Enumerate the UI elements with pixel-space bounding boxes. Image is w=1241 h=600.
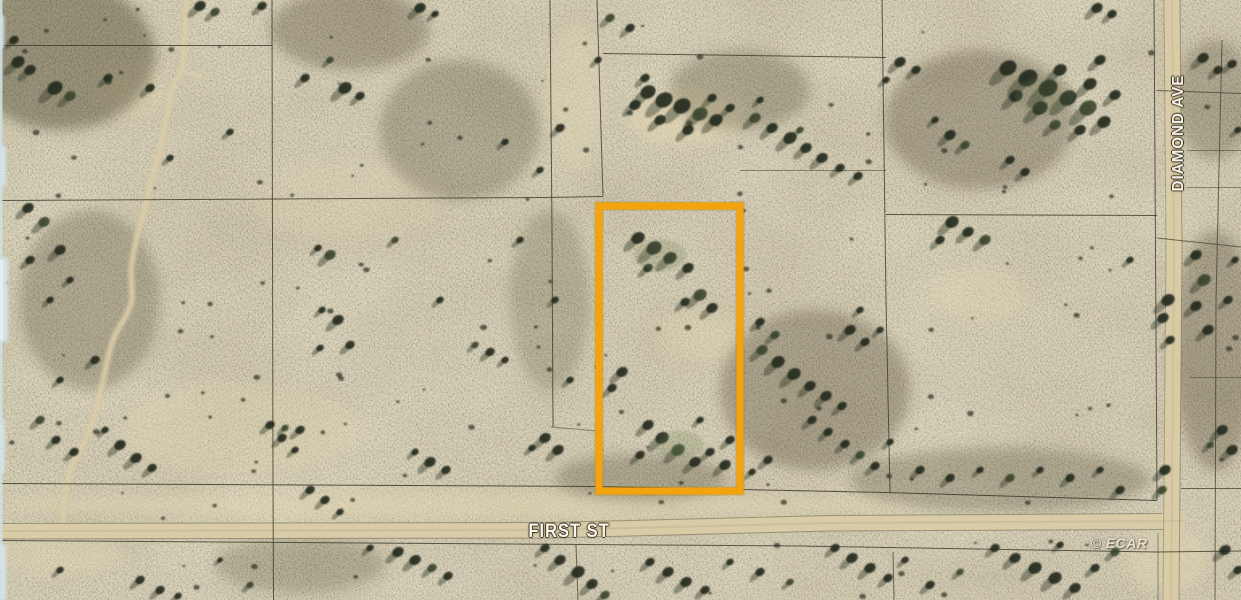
satellite-layer	[0, 0, 1241, 600]
aerial-map: FIRST ST DIAMOND AVE © ECAR	[0, 0, 1241, 600]
